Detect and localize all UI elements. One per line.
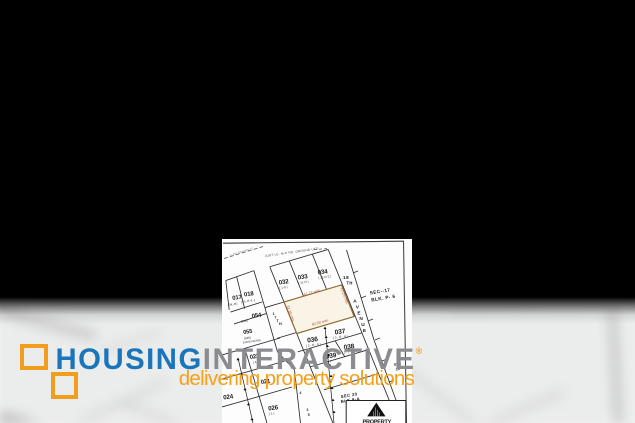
svg-text:054: 054: [251, 313, 262, 320]
svg-text:V: V: [356, 304, 360, 310]
svg-text:BLK. P- 6: BLK. P- 6: [371, 294, 396, 303]
svg-text:(34,-R): (34,-R): [228, 302, 238, 307]
svg-text:H: H: [279, 322, 282, 326]
svg-text:3: 3: [307, 408, 309, 412]
svg-text:A: A: [353, 299, 357, 305]
svg-text:JUST UL. M-H RD. GROUND UFO: JUST UL. M-H RD. GROUND UFO: [265, 246, 320, 258]
svg-text:E: E: [357, 310, 361, 316]
svg-text:( 11-R-2 ): ( 11-R-2 ): [318, 274, 331, 280]
svg-text:(046): (046): [241, 319, 249, 324]
svg-text:N: N: [359, 316, 363, 322]
svg-text:S. DEL ROSARIO ST: S. DEL ROSARIO ST: [229, 247, 254, 257]
svg-text:TH: TH: [347, 281, 353, 286]
svg-text:E: E: [363, 328, 367, 334]
svg-text:5: 5: [308, 413, 310, 417]
svg-text:18: 18: [343, 275, 349, 280]
svg-text:( 1-0 ): ( 1-0 ): [279, 285, 288, 290]
svg-text:( 1 ): ( 1 ): [269, 411, 275, 416]
svg-text:( 11-R ): ( 11-R ): [298, 280, 309, 285]
svg-text:PROPERTY: PROPERTY: [363, 420, 392, 423]
svg-text:(16,-R-4,-): (16,-R-4,-): [241, 298, 256, 304]
svg-text:U: U: [361, 322, 365, 328]
